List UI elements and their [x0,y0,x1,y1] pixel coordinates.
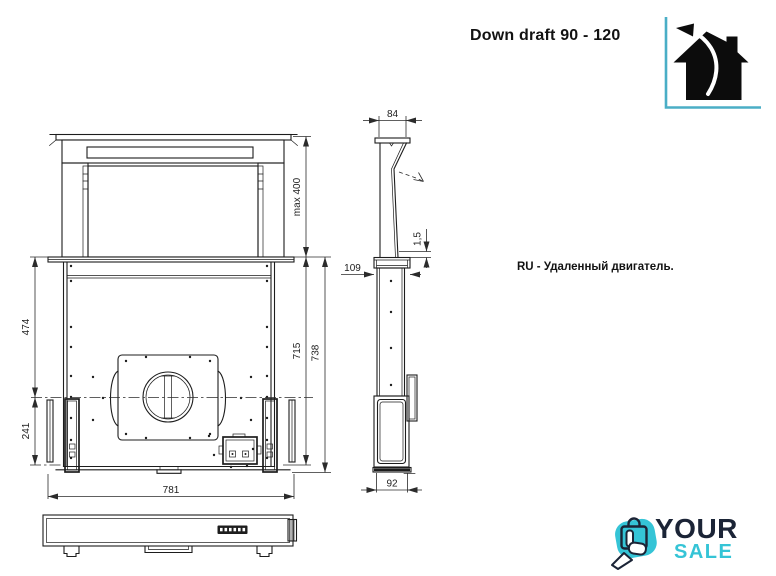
front-body-top-lines [67,276,271,279]
control-button[interactable] [229,528,232,531]
front-plate-left-wing [111,371,119,426]
front-right-column [258,163,284,257]
front-right-slide-rail [258,166,263,262]
exhaust-arrowhead [676,24,694,37]
side-motor-box-inner [378,400,406,464]
side-top-cap [375,138,410,143]
dim-flange-depth-label: 109 [344,263,361,274]
front-plate-right-wing [218,371,226,426]
front-duct-circle [143,372,193,422]
control-panel[interactable] [218,526,248,535]
front-right-rail-slot2 [267,452,273,457]
front-junction-box [219,434,261,464]
front-glass-panel [88,166,258,257]
house-exhaust-icon [666,17,761,108]
front-left-rail-slot1 [70,444,76,449]
front-left-rail-ticks [83,174,88,189]
front-body-bottom [56,467,290,470]
bottom-left-foot [64,546,79,557]
bottom-outer-shell [43,515,293,546]
side-view [373,138,424,474]
front-left-slide-rail [83,166,88,262]
bottom-right-foot [257,546,272,557]
front-left-rail-inner [68,401,77,470]
dim-top-depth-label: 84 [387,109,399,120]
front-view [30,135,313,474]
control-button[interactable] [243,528,246,531]
note-remote-motor: RU - Удаленный двигатель. [517,261,674,273]
dim-width-label: 781 [163,485,180,496]
front-duct-circle-inner [146,375,190,419]
dim-body-height-label: 715 [292,342,303,359]
dim-body-depth-label: 92 [386,479,398,490]
side-bottom-plate-fill [374,468,410,471]
dim-total-height-label: 738 [311,344,322,361]
side-body-column [377,268,405,396]
front-right-rail-slot1 [267,444,273,449]
side-countertop-flange [374,258,410,269]
bottom-view [43,515,297,557]
side-tilt-arrowhead [414,173,424,182]
hand-shopping-bag-icon [612,517,659,569]
dim-lift-height-label: max 400 [292,177,303,216]
page-title: Down draft 90 - 120 [470,27,621,45]
control-button[interactable] [220,528,223,531]
dim-1-5-ext [399,252,431,258]
side-motor-box [374,396,409,467]
logo-word-sale: SALE [674,541,733,564]
front-left-column [62,163,88,257]
control-button[interactable] [225,528,228,531]
hand-fist [628,542,646,555]
page: 781 max 400 715 738 474 241 [0,0,776,576]
side-motor-box-inner2 [380,402,403,461]
technical-drawing: 781 max 400 715 738 474 241 [0,0,776,576]
dim-panel-gap-label: 1,5 [413,232,424,246]
front-duct-damper [162,376,175,418]
side-dimensions: 84 1,5 109 92 [341,109,431,493]
dim-upper-section-label: 474 [21,318,32,335]
front-right-rail-ticks [258,174,263,189]
front-top-plate-body [56,135,291,141]
front-visor-panel [62,140,284,163]
front-body-walls [64,262,275,467]
front-left-rail-slot2 [70,452,76,457]
control-button[interactable] [234,528,237,531]
dim-lower-section-label: 241 [21,422,32,439]
control-button[interactable] [238,528,241,531]
side-bracket-inner [409,377,415,419]
side-body-column-inner [380,268,403,396]
bottom-inner-panel [47,519,290,543]
front-right-rail-inner [266,401,275,470]
